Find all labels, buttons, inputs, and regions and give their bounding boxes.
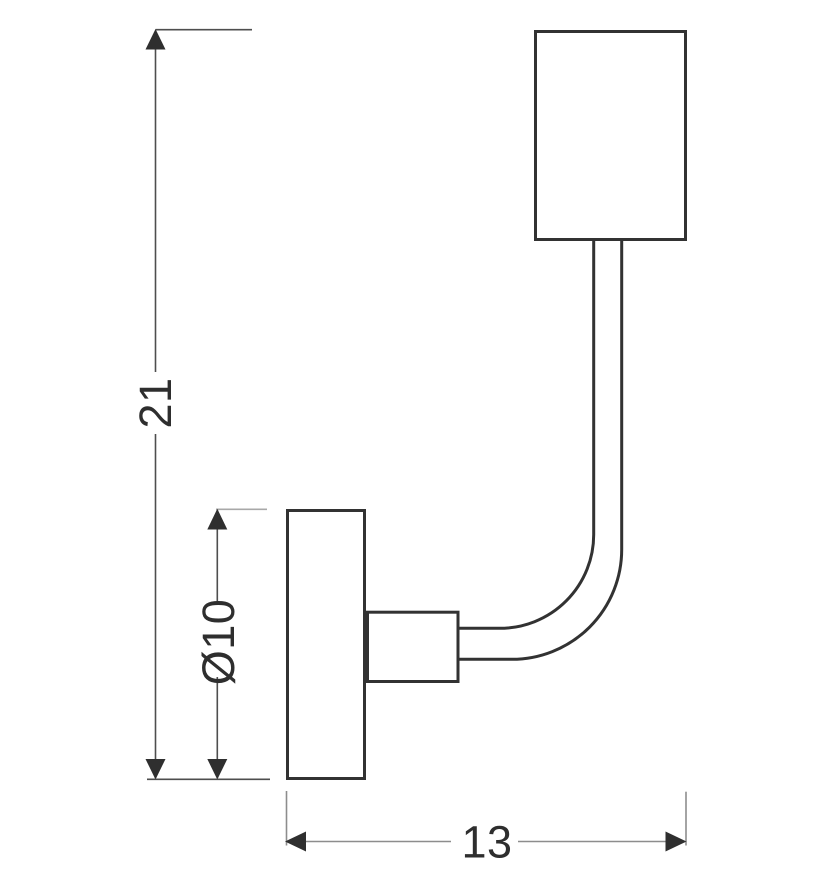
depth-arrowhead-left xyxy=(285,832,306,852)
lamp-outline xyxy=(288,32,686,779)
height-dimension-label: 21 xyxy=(130,377,181,428)
plate-arrowhead-down xyxy=(207,759,227,780)
arm-inner-contour xyxy=(459,240,594,628)
plate-dimension-label: Ø10 xyxy=(193,599,244,686)
height-arrowhead-down xyxy=(146,759,166,780)
drawing-canvas: 21 Ø10 13 xyxy=(0,0,828,886)
wall-plate xyxy=(288,511,365,779)
technical-drawing: 21 Ø10 13 xyxy=(0,0,828,886)
depth-dimension-label: 13 xyxy=(461,817,512,868)
plate-arrowhead-up xyxy=(207,509,227,530)
dimension-depth: 13 xyxy=(285,791,687,868)
depth-arrowhead-right xyxy=(666,832,687,852)
mount-connector-block xyxy=(368,612,459,681)
dimension-plate-diameter: Ø10 xyxy=(147,509,270,780)
lampshade xyxy=(536,32,686,240)
arm-outer-contour xyxy=(459,240,622,659)
height-arrowhead-up xyxy=(146,29,166,50)
